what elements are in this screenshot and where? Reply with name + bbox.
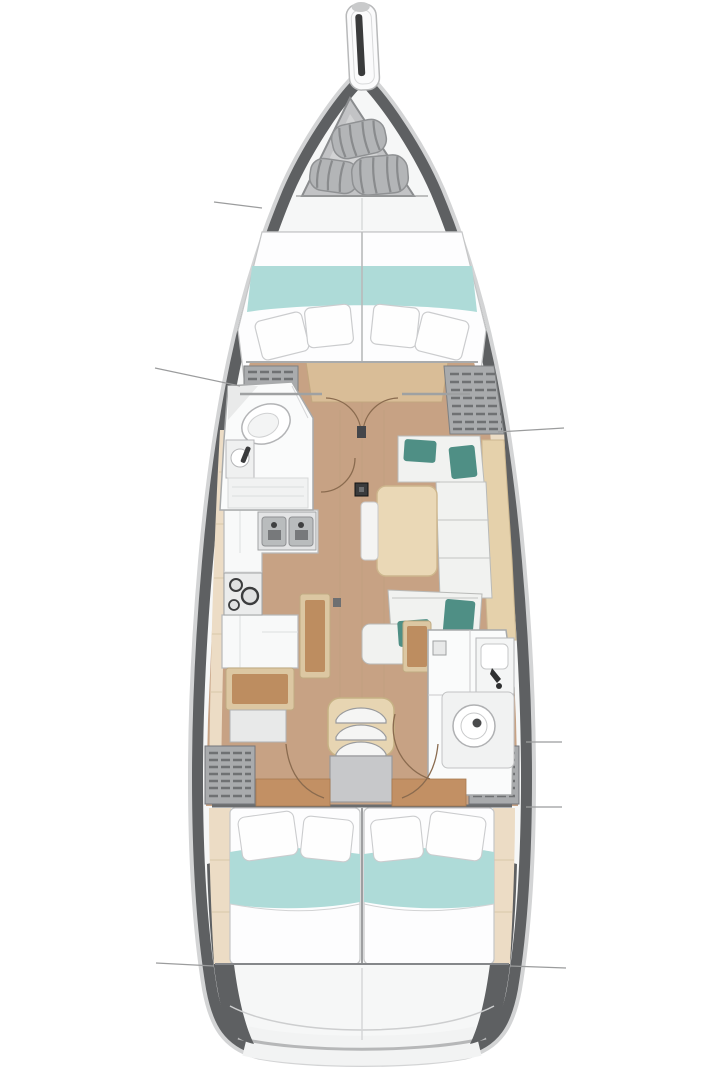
v-berth-pillow-3 bbox=[370, 304, 420, 349]
berth-foot-step bbox=[306, 362, 448, 402]
fwd-shelf-starboard bbox=[444, 366, 504, 434]
headboard-port bbox=[256, 779, 330, 806]
boat-floor-plan bbox=[0, 0, 720, 1080]
sink-drain-1 bbox=[268, 530, 281, 540]
faucet-1 bbox=[271, 522, 277, 528]
teal-pillow bbox=[448, 445, 477, 480]
burner-2 bbox=[242, 588, 258, 604]
mast-step bbox=[355, 483, 368, 496]
nav-bench-cushion bbox=[232, 674, 288, 704]
aft-wardrobe-port bbox=[205, 746, 255, 804]
aft-sink bbox=[476, 638, 514, 694]
headboard-starboard bbox=[392, 779, 466, 806]
stove bbox=[224, 573, 262, 615]
burner-1 bbox=[230, 579, 242, 591]
aft-head bbox=[428, 630, 514, 795]
burner-3 bbox=[229, 600, 239, 610]
stairs-platform bbox=[330, 756, 392, 802]
side-bench bbox=[300, 594, 330, 678]
aft-galley-cabinet bbox=[230, 710, 286, 742]
forward-head bbox=[220, 382, 313, 510]
aft-cabin bbox=[212, 779, 512, 964]
v-berth-pillow-2 bbox=[304, 304, 354, 349]
aft-toilet bbox=[442, 692, 514, 768]
mast-core bbox=[359, 487, 364, 492]
aft-bed-starboard bbox=[364, 808, 494, 964]
faucet-2 bbox=[298, 522, 304, 528]
pillow bbox=[300, 816, 354, 863]
chart-seat-cushion bbox=[407, 626, 427, 667]
toilet-drain bbox=[473, 719, 482, 728]
shower-floor bbox=[228, 478, 308, 508]
forward-sink bbox=[226, 440, 254, 478]
galley-counter-lower bbox=[222, 615, 298, 668]
settee-bench-side bbox=[436, 482, 492, 598]
table-support bbox=[333, 598, 341, 607]
aft-bed-port bbox=[230, 808, 360, 964]
teal-pillow bbox=[403, 439, 436, 463]
sink-drain-2 bbox=[295, 530, 308, 540]
door-latch-post bbox=[357, 426, 366, 438]
double-sink bbox=[258, 512, 316, 550]
chart-seat-box bbox=[403, 621, 431, 672]
sink-bowl bbox=[481, 644, 508, 669]
vent-panel bbox=[433, 641, 446, 655]
pillow bbox=[425, 810, 487, 861]
faucet-knob bbox=[496, 683, 502, 689]
dinette-table bbox=[377, 486, 437, 576]
table-folded-leaf bbox=[361, 502, 378, 560]
companionway bbox=[328, 698, 394, 802]
floor-plan-canvas bbox=[0, 0, 720, 1080]
bowsprit bbox=[346, 1, 381, 90]
side-bench-cushion bbox=[305, 600, 325, 672]
pillow bbox=[237, 810, 299, 861]
rolled-sail-3 bbox=[350, 154, 409, 197]
nav-bench bbox=[226, 668, 294, 710]
pillow bbox=[370, 816, 424, 863]
